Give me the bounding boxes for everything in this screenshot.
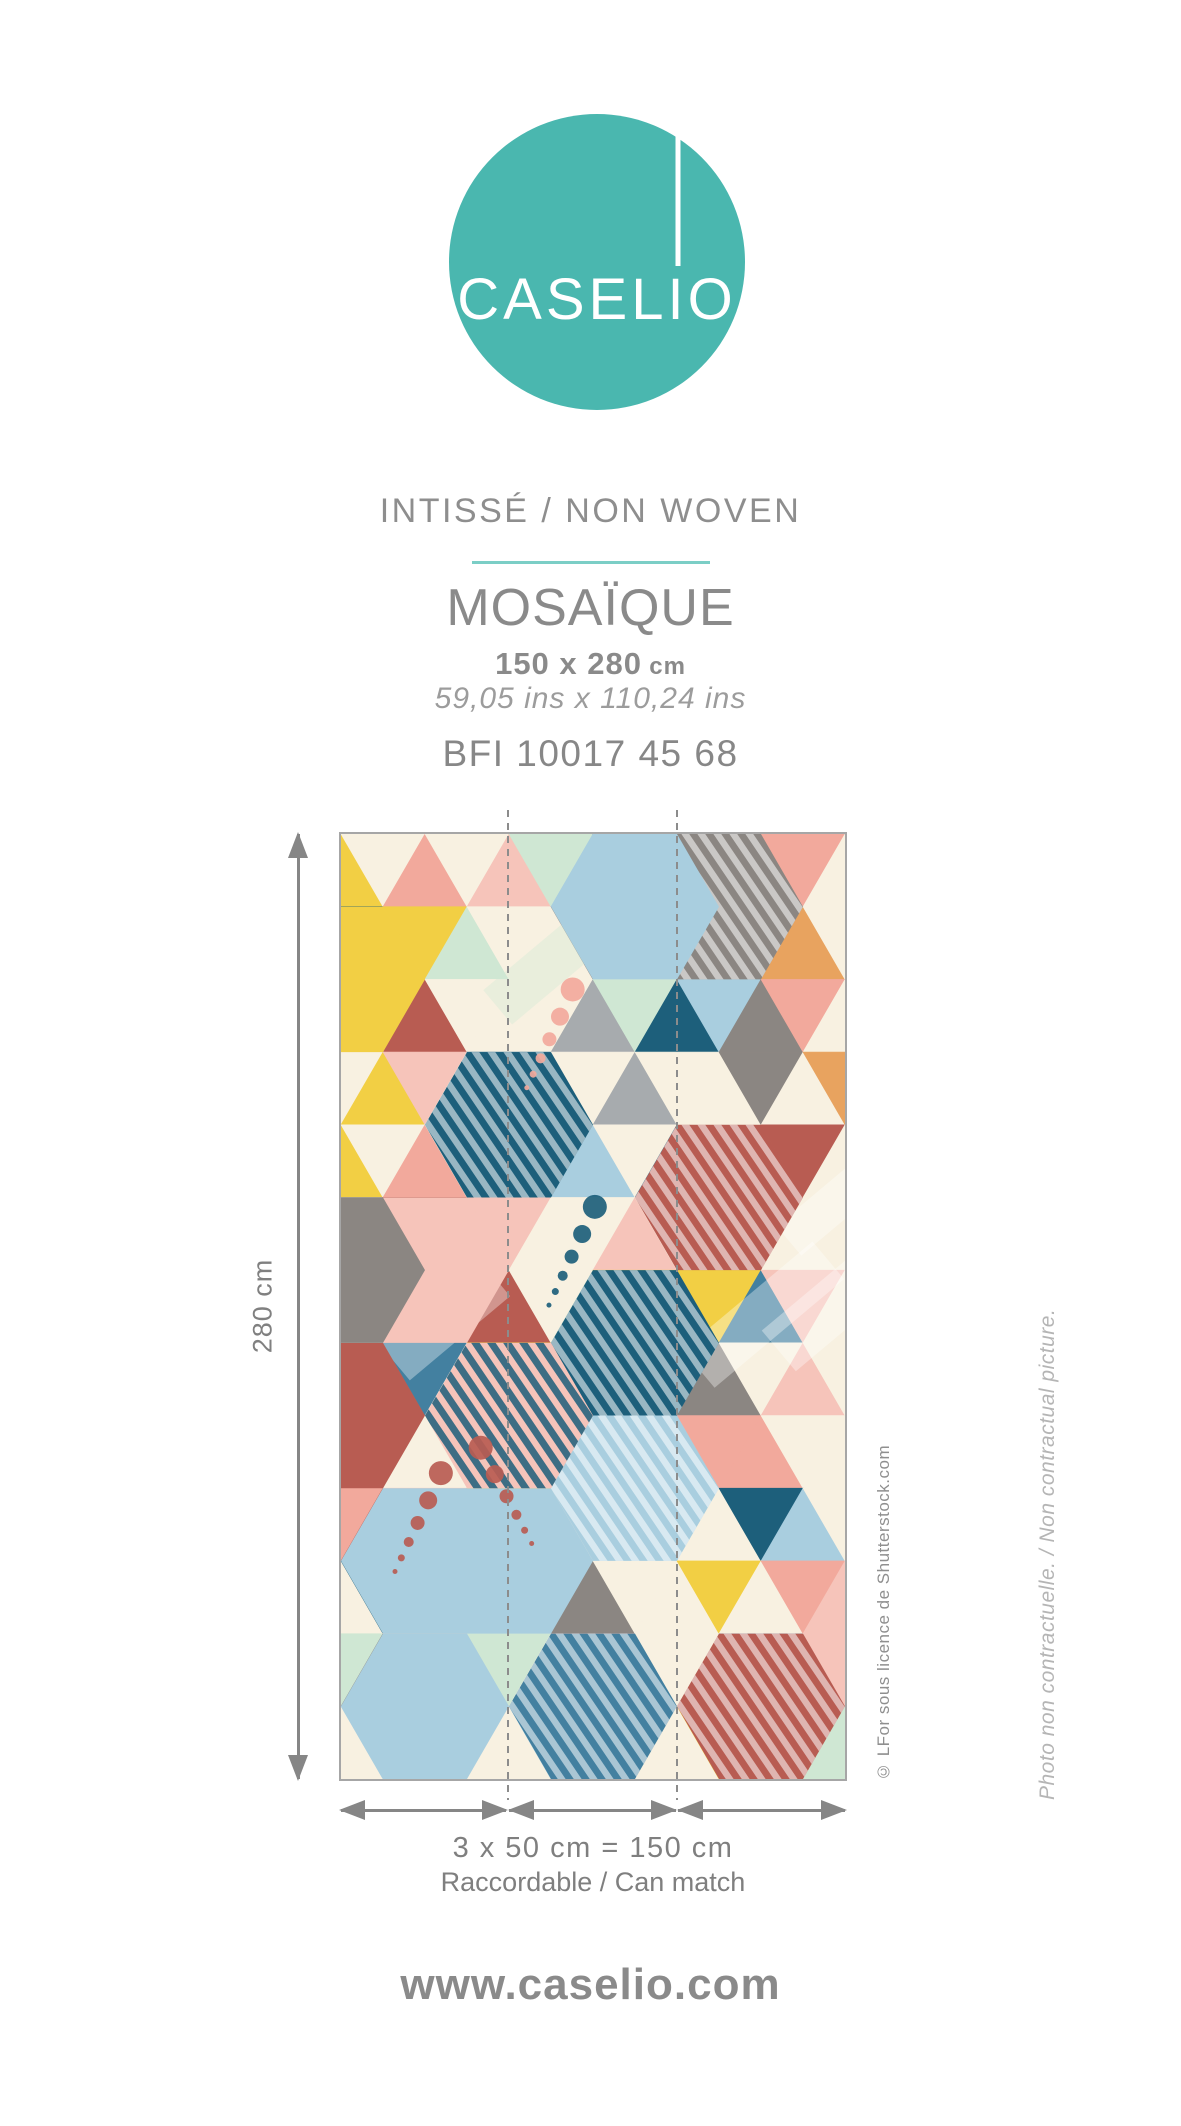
photo-credit: © LFor sous licence de Shutterstock.com bbox=[874, 1401, 894, 1781]
arrow-left-icon bbox=[677, 1800, 703, 1820]
height-dimension-line bbox=[297, 834, 300, 1779]
disclaimer-note: Photo non contractuelle. / Non contractu… bbox=[1036, 1155, 1060, 1800]
strip-seam-dashed-line-2 bbox=[676, 810, 678, 1800]
height-dimension-label: 280 cm bbox=[248, 1259, 279, 1354]
logo-i-bar-icon bbox=[675, 130, 680, 266]
strip-seam-dashed-line-1 bbox=[507, 810, 509, 1800]
size-cm-line: 150 x 280 cm bbox=[0, 646, 1181, 682]
brand-text-left: CASEL bbox=[457, 267, 667, 332]
arrow-down-icon bbox=[288, 1755, 308, 1781]
wallpaper-pattern-image bbox=[339, 832, 847, 1781]
size-cm-value: 150 x 280 bbox=[495, 646, 642, 681]
match-label: Raccordable / Can match bbox=[339, 1867, 847, 1898]
brand-text-right: O bbox=[688, 267, 737, 332]
material-heading: INTISSÉ / NON WOVEN bbox=[0, 492, 1181, 531]
arrow-left-icon bbox=[508, 1800, 534, 1820]
brand-letter-i: I bbox=[667, 271, 687, 329]
collection-title: MOSAÏQUE bbox=[0, 578, 1181, 638]
product-reference: BFI 10017 45 68 bbox=[0, 733, 1181, 775]
teal-divider bbox=[472, 561, 710, 564]
width-arrow-segment-3 bbox=[678, 1809, 845, 1812]
size-ins-line: 59,05 ins x 110,24 ins bbox=[0, 682, 1181, 716]
arrow-left-icon bbox=[339, 1800, 365, 1820]
brand-logo: CASELIO bbox=[449, 114, 745, 410]
arrow-right-icon bbox=[482, 1800, 508, 1820]
product-sheet: CASELIO INTISSÉ / NON WOVEN MOSAÏQUE 150… bbox=[0, 0, 1181, 2126]
arrow-up-icon bbox=[288, 832, 308, 858]
arrow-right-icon bbox=[821, 1800, 847, 1820]
website-url: www.caselio.com bbox=[0, 1960, 1181, 2010]
brand-wordmark: CASELIO bbox=[449, 271, 745, 329]
width-formula-label: 3 x 50 cm = 150 cm bbox=[339, 1832, 847, 1865]
arrow-right-icon bbox=[651, 1800, 677, 1820]
size-cm-unit: cm bbox=[649, 653, 686, 680]
